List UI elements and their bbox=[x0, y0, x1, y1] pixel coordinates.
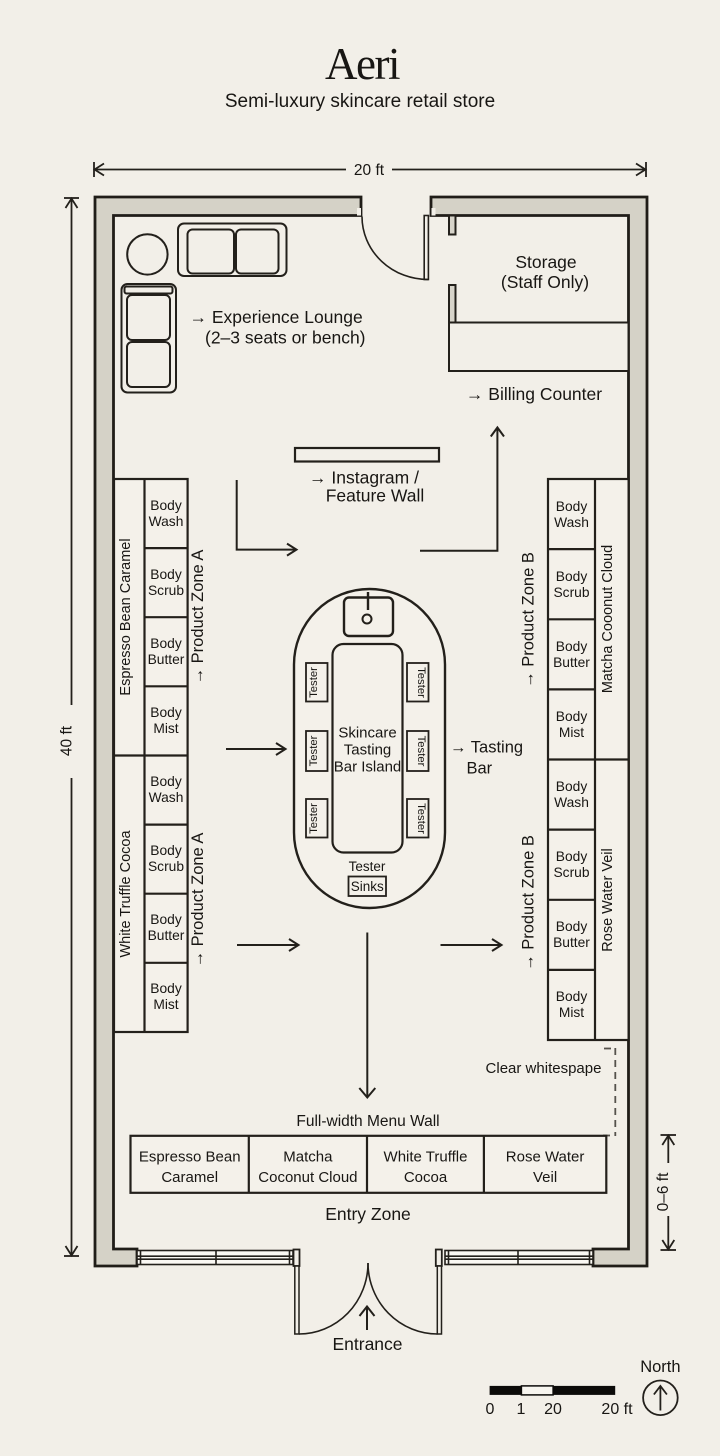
svg-text:Feature Wall: Feature Wall bbox=[326, 486, 425, 506]
svg-text:Mist: Mist bbox=[559, 1005, 584, 1020]
svg-text:Caramel: Caramel bbox=[161, 1169, 218, 1186]
svg-text:Espresso Bean Caramel: Espresso Bean Caramel bbox=[118, 538, 134, 695]
svg-text:Tester: Tester bbox=[415, 667, 427, 698]
svg-text:Scrub: Scrub bbox=[148, 859, 184, 874]
svg-text:→ Product Zone B: → Product Zone B bbox=[520, 552, 538, 688]
svg-text:Bar Island: Bar Island bbox=[334, 759, 402, 776]
svg-text:Espresso Bean: Espresso Bean bbox=[139, 1149, 241, 1166]
svg-text:Tester: Tester bbox=[308, 803, 320, 834]
svg-text:Body: Body bbox=[556, 779, 588, 794]
svg-text:Bar: Bar bbox=[467, 760, 493, 778]
svg-text:Tester: Tester bbox=[415, 803, 427, 834]
svg-text:Wash: Wash bbox=[554, 795, 589, 810]
svg-text:Tester: Tester bbox=[415, 736, 427, 767]
svg-text:→ Experience Lounge: → Experience Lounge bbox=[190, 307, 363, 327]
svg-text:Matcha Cooonut Cloud: Matcha Cooonut Cloud bbox=[600, 545, 616, 693]
svg-text:1: 1 bbox=[517, 1401, 526, 1418]
svg-text:Sinks: Sinks bbox=[351, 879, 384, 894]
svg-text:→ Product Zone A: → Product Zone A bbox=[189, 550, 207, 685]
svg-text:→ Product Zone A: → Product Zone A bbox=[189, 833, 207, 968]
svg-text:Semi-luxury skincare retail st: Semi-luxury skincare retail store bbox=[225, 91, 495, 112]
svg-text:(Staff Only): (Staff Only) bbox=[501, 272, 589, 292]
svg-text:Wash: Wash bbox=[149, 514, 184, 529]
svg-text:Tester: Tester bbox=[349, 859, 386, 874]
svg-text:Body: Body bbox=[556, 499, 588, 514]
svg-text:Matcha: Matcha bbox=[283, 1149, 333, 1166]
svg-text:20 ft: 20 ft bbox=[601, 1401, 633, 1418]
svg-text:Clear whitespape: Clear whitespape bbox=[486, 1060, 602, 1077]
svg-text:Storage: Storage bbox=[515, 252, 576, 272]
svg-text:Body: Body bbox=[150, 843, 182, 858]
svg-text:Scrub: Scrub bbox=[553, 585, 589, 600]
svg-text:Butter: Butter bbox=[148, 928, 185, 943]
svg-text:Body: Body bbox=[150, 981, 182, 996]
svg-text:Coconut Cloud: Coconut Cloud bbox=[258, 1169, 357, 1186]
svg-text:Mist: Mist bbox=[153, 997, 178, 1012]
svg-text:Butter: Butter bbox=[553, 655, 590, 670]
svg-text:Skincare: Skincare bbox=[338, 725, 396, 742]
svg-text:Entry Zone: Entry Zone bbox=[325, 1204, 411, 1224]
svg-text:Mist: Mist bbox=[153, 721, 178, 736]
svg-text:Body: Body bbox=[150, 912, 182, 927]
svg-text:Scrub: Scrub bbox=[148, 583, 184, 598]
svg-text:Body: Body bbox=[150, 636, 182, 651]
svg-text:Body: Body bbox=[150, 705, 182, 720]
svg-text:Scrub: Scrub bbox=[553, 865, 589, 880]
svg-text:0: 0 bbox=[486, 1401, 495, 1418]
svg-text:Body: Body bbox=[150, 774, 182, 789]
svg-text:→ Billing Counter: → Billing Counter bbox=[466, 384, 602, 404]
svg-text:Butter: Butter bbox=[553, 935, 590, 950]
svg-text:→ Tasting: → Tasting bbox=[450, 739, 523, 757]
svg-text:Tester: Tester bbox=[308, 667, 320, 698]
svg-text:20: 20 bbox=[544, 1401, 562, 1418]
svg-text:Rose Water: Rose Water bbox=[506, 1149, 585, 1166]
svg-text:Mist: Mist bbox=[559, 725, 584, 740]
svg-text:Body: Body bbox=[556, 639, 588, 654]
svg-text:40 ft: 40 ft bbox=[59, 725, 76, 756]
svg-text:Wash: Wash bbox=[149, 790, 184, 805]
svg-text:Body: Body bbox=[150, 567, 182, 582]
svg-text:Body: Body bbox=[556, 989, 588, 1004]
svg-text:Veil: Veil bbox=[533, 1169, 557, 1186]
svg-text:Wash: Wash bbox=[554, 515, 589, 530]
svg-text:Tester: Tester bbox=[308, 735, 320, 766]
svg-text:White Truffle: White Truffle bbox=[384, 1149, 468, 1166]
svg-text:Body: Body bbox=[556, 569, 588, 584]
svg-text:Aeri: Aeri bbox=[325, 39, 400, 89]
svg-text:Butter: Butter bbox=[148, 652, 185, 667]
svg-text:Body: Body bbox=[150, 498, 182, 513]
svg-text:→ Product Zone B: → Product Zone B bbox=[520, 835, 538, 971]
svg-text:Cocoa: Cocoa bbox=[404, 1169, 448, 1186]
svg-text:→ Instagram /: → Instagram / bbox=[309, 468, 419, 488]
svg-text:Body: Body bbox=[556, 709, 588, 724]
svg-text:North: North bbox=[640, 1358, 680, 1376]
svg-text:White Truffle Cocoa: White Truffle Cocoa bbox=[118, 830, 134, 958]
svg-text:0–6 ft: 0–6 ft bbox=[655, 1172, 672, 1211]
svg-text:20 ft: 20 ft bbox=[354, 162, 385, 179]
svg-text:(2–3 seats or bench): (2–3 seats or bench) bbox=[205, 328, 366, 348]
svg-text:Rose Water Veil: Rose Water Veil bbox=[600, 848, 616, 951]
svg-text:Body: Body bbox=[556, 849, 588, 864]
svg-text:Entrance: Entrance bbox=[332, 1334, 402, 1354]
svg-text:Full-width Menu Wall: Full-width Menu Wall bbox=[296, 1113, 439, 1130]
svg-text:Body: Body bbox=[556, 919, 588, 934]
svg-text:Tasting: Tasting bbox=[344, 742, 392, 759]
